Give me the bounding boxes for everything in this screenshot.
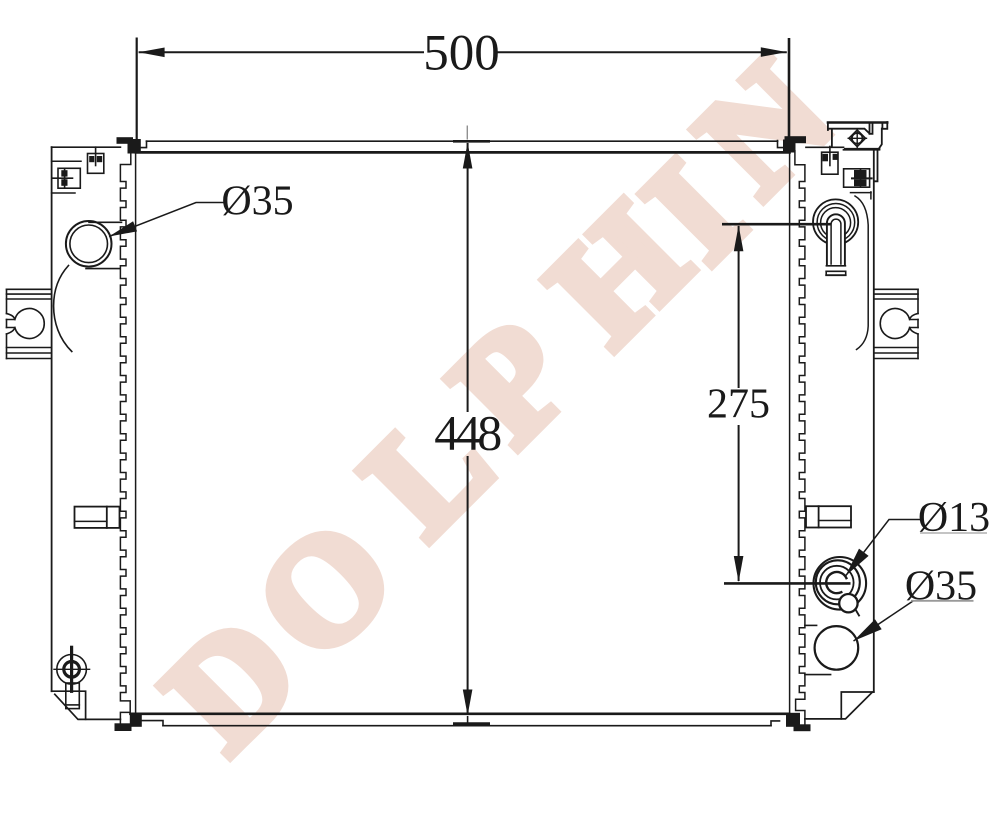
svg-text:Ø13: Ø13 [918, 495, 990, 541]
svg-text:448: 448 [434, 405, 501, 461]
svg-text:275: 275 [707, 382, 770, 428]
svg-text:Ø35: Ø35 [905, 564, 977, 610]
svg-text:Ø35: Ø35 [221, 179, 293, 225]
svg-text:500: 500 [423, 25, 500, 81]
